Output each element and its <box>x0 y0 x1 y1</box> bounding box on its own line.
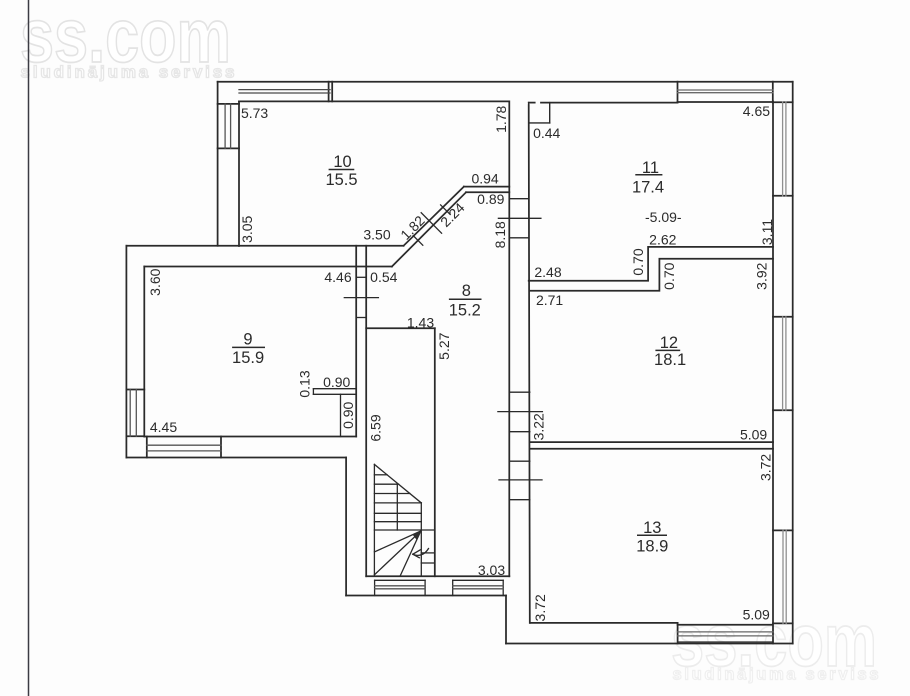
svg-text:2.62: 2.62 <box>649 231 676 247</box>
svg-text:0.44: 0.44 <box>533 125 560 141</box>
svg-text:2.71: 2.71 <box>536 292 563 308</box>
svg-text:3.03: 3.03 <box>478 562 505 578</box>
svg-text:1.43: 1.43 <box>407 315 434 331</box>
svg-text:9: 9 <box>243 330 252 348</box>
svg-text:3.72: 3.72 <box>532 594 548 621</box>
svg-text:3.50: 3.50 <box>363 227 390 243</box>
svg-text:18.9: 18.9 <box>636 538 668 556</box>
svg-text:0.70: 0.70 <box>661 262 677 289</box>
svg-text:12: 12 <box>660 334 678 352</box>
svg-text:0.70: 0.70 <box>630 248 646 275</box>
svg-text:-5.09-: -5.09- <box>645 209 682 225</box>
svg-text:15.5: 15.5 <box>325 171 357 189</box>
svg-text:18.1: 18.1 <box>654 351 686 369</box>
svg-text:17.4: 17.4 <box>632 179 664 197</box>
svg-text:4.65: 4.65 <box>743 103 770 119</box>
svg-text:1.78: 1.78 <box>493 105 509 132</box>
svg-text:5.09: 5.09 <box>743 607 770 623</box>
svg-text:2.48: 2.48 <box>534 264 561 280</box>
svg-text:6.59: 6.59 <box>368 414 384 441</box>
svg-text:15.2: 15.2 <box>449 301 481 319</box>
svg-text:0.54: 0.54 <box>370 269 397 285</box>
svg-text:8.18: 8.18 <box>492 221 508 248</box>
svg-text:3.11: 3.11 <box>759 219 775 245</box>
svg-text:5.09: 5.09 <box>740 426 767 442</box>
svg-text:8: 8 <box>462 282 471 300</box>
svg-text:3.22: 3.22 <box>530 413 546 440</box>
svg-text:15.9: 15.9 <box>232 349 264 367</box>
svg-text:13: 13 <box>643 519 661 537</box>
svg-text:4.46: 4.46 <box>324 269 351 285</box>
svg-text:0.90: 0.90 <box>340 401 356 428</box>
svg-text:4.45: 4.45 <box>150 419 177 435</box>
svg-text:3.60: 3.60 <box>147 268 163 295</box>
svg-text:0.90: 0.90 <box>323 374 350 390</box>
svg-text:0.13: 0.13 <box>296 370 312 397</box>
svg-text:10: 10 <box>333 153 351 171</box>
svg-text:3.72: 3.72 <box>757 454 773 481</box>
svg-text:0.94: 0.94 <box>471 170 498 186</box>
svg-text:5.73: 5.73 <box>241 105 268 121</box>
svg-text:5.27: 5.27 <box>436 332 452 359</box>
svg-text:3.92: 3.92 <box>754 262 770 289</box>
svg-text:3.05: 3.05 <box>239 215 255 242</box>
svg-text:0.89: 0.89 <box>477 191 504 207</box>
